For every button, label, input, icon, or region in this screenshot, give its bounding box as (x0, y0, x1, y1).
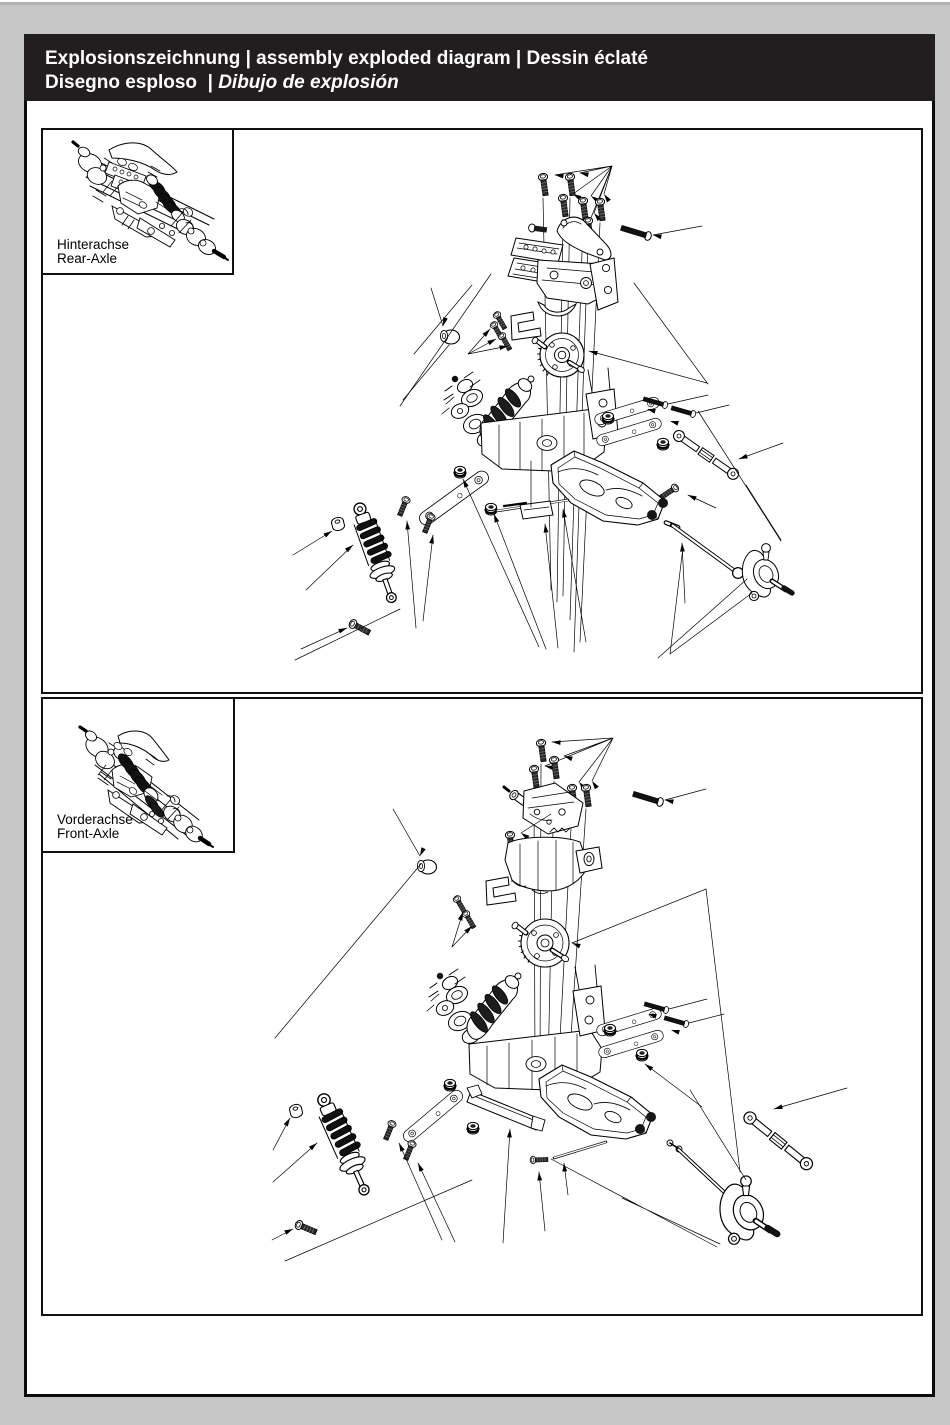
svg-text:Rear-Axle: Rear-Axle (57, 251, 117, 266)
svg-text:Vorderachse: Vorderachse (57, 812, 133, 827)
svg-text:Hinterachse: Hinterachse (57, 237, 129, 252)
svg-text:Front-Axle: Front-Axle (57, 826, 119, 841)
